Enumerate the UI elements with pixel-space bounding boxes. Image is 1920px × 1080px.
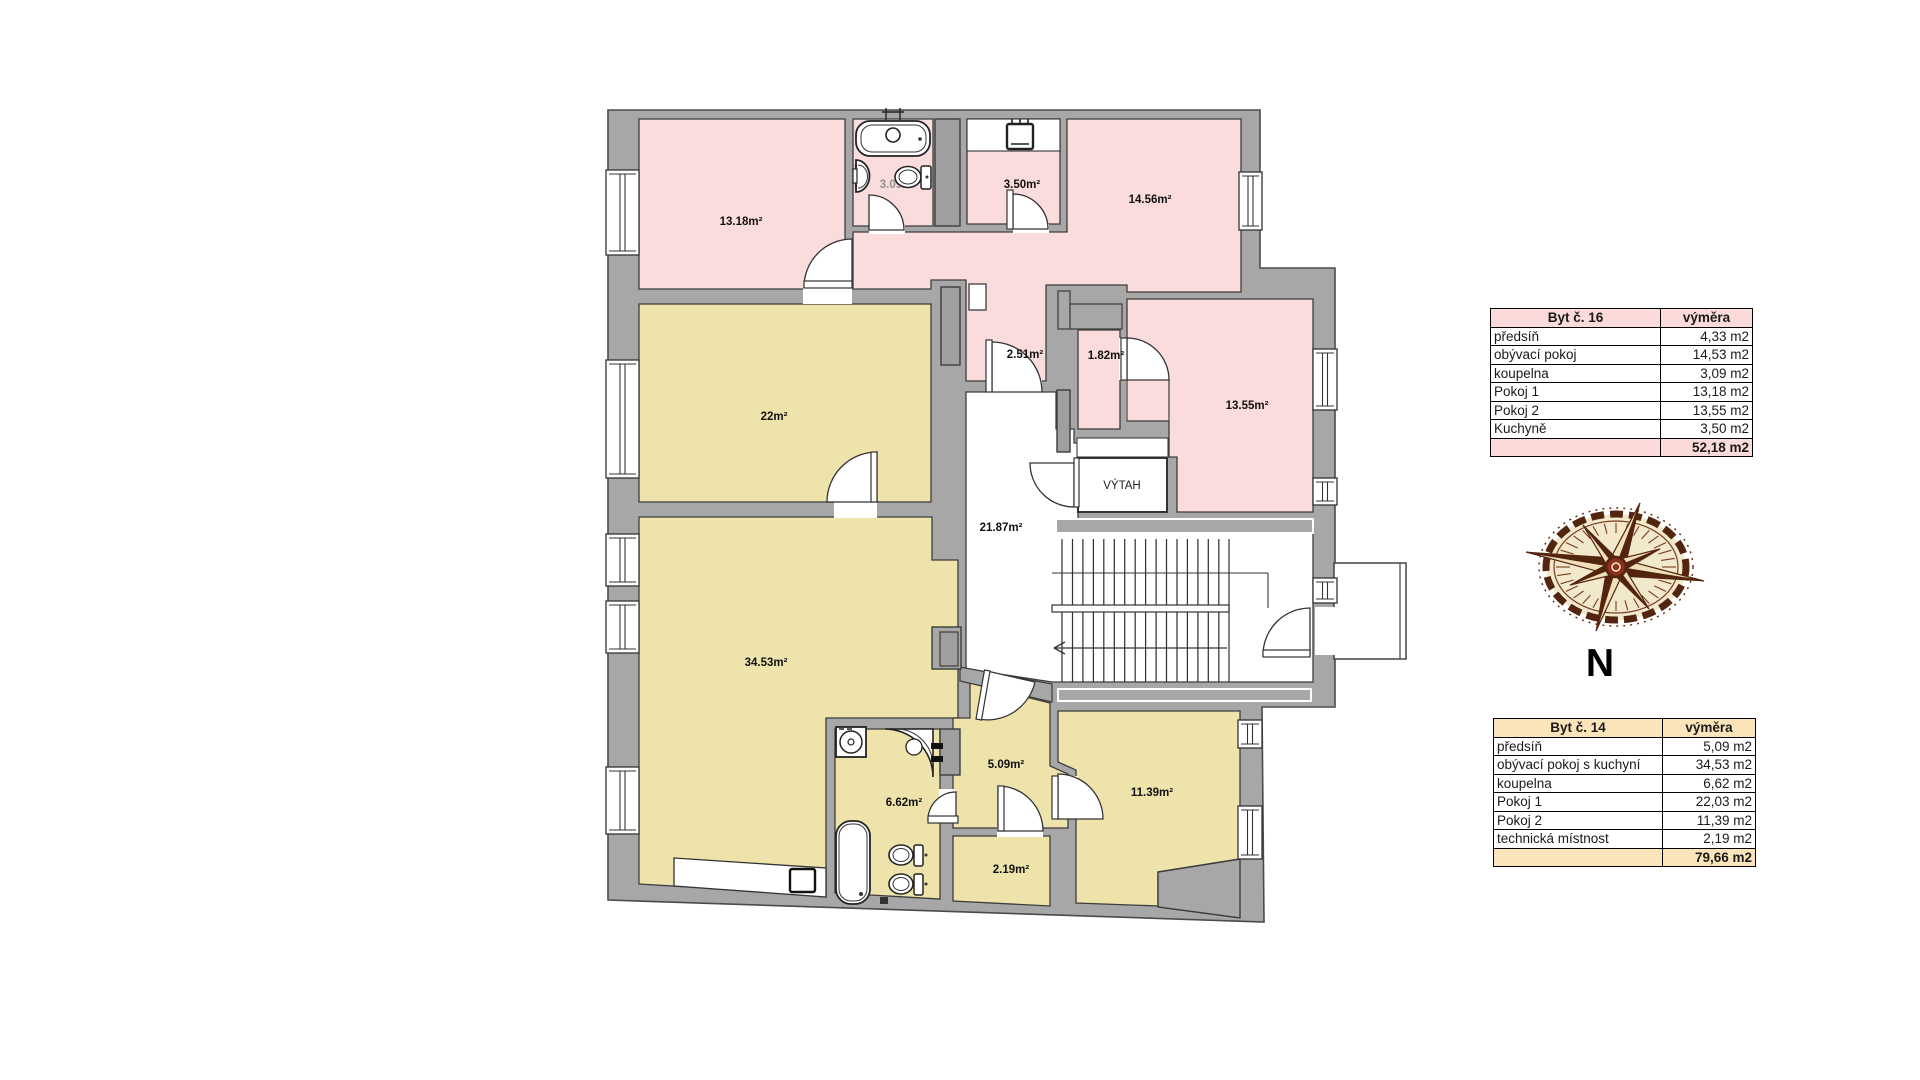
svg-text:34.53m²: 34.53m² (745, 657, 788, 669)
svg-text:13.18m²: 13.18m² (720, 216, 763, 228)
svg-text:VÝTAH: VÝTAH (1103, 479, 1141, 492)
svg-text:22m²: 22m² (761, 411, 788, 423)
svg-text:14.56m²: 14.56m² (1129, 194, 1172, 206)
svg-text:13.55m²: 13.55m² (1226, 400, 1269, 412)
svg-text:6.62m²: 6.62m² (886, 797, 923, 809)
svg-text:21.87m²: 21.87m² (980, 522, 1023, 534)
svg-text:N: N (1586, 642, 1614, 685)
svg-text:2.19m²: 2.19m² (993, 864, 1030, 876)
svg-text:1.82m²: 1.82m² (1088, 350, 1125, 362)
svg-text:11.39m²: 11.39m² (1131, 787, 1173, 799)
svg-text:3.50m²: 3.50m² (1004, 179, 1041, 191)
svg-text:5.09m²: 5.09m² (988, 759, 1025, 771)
svg-text:2.51m²: 2.51m² (1007, 349, 1044, 361)
